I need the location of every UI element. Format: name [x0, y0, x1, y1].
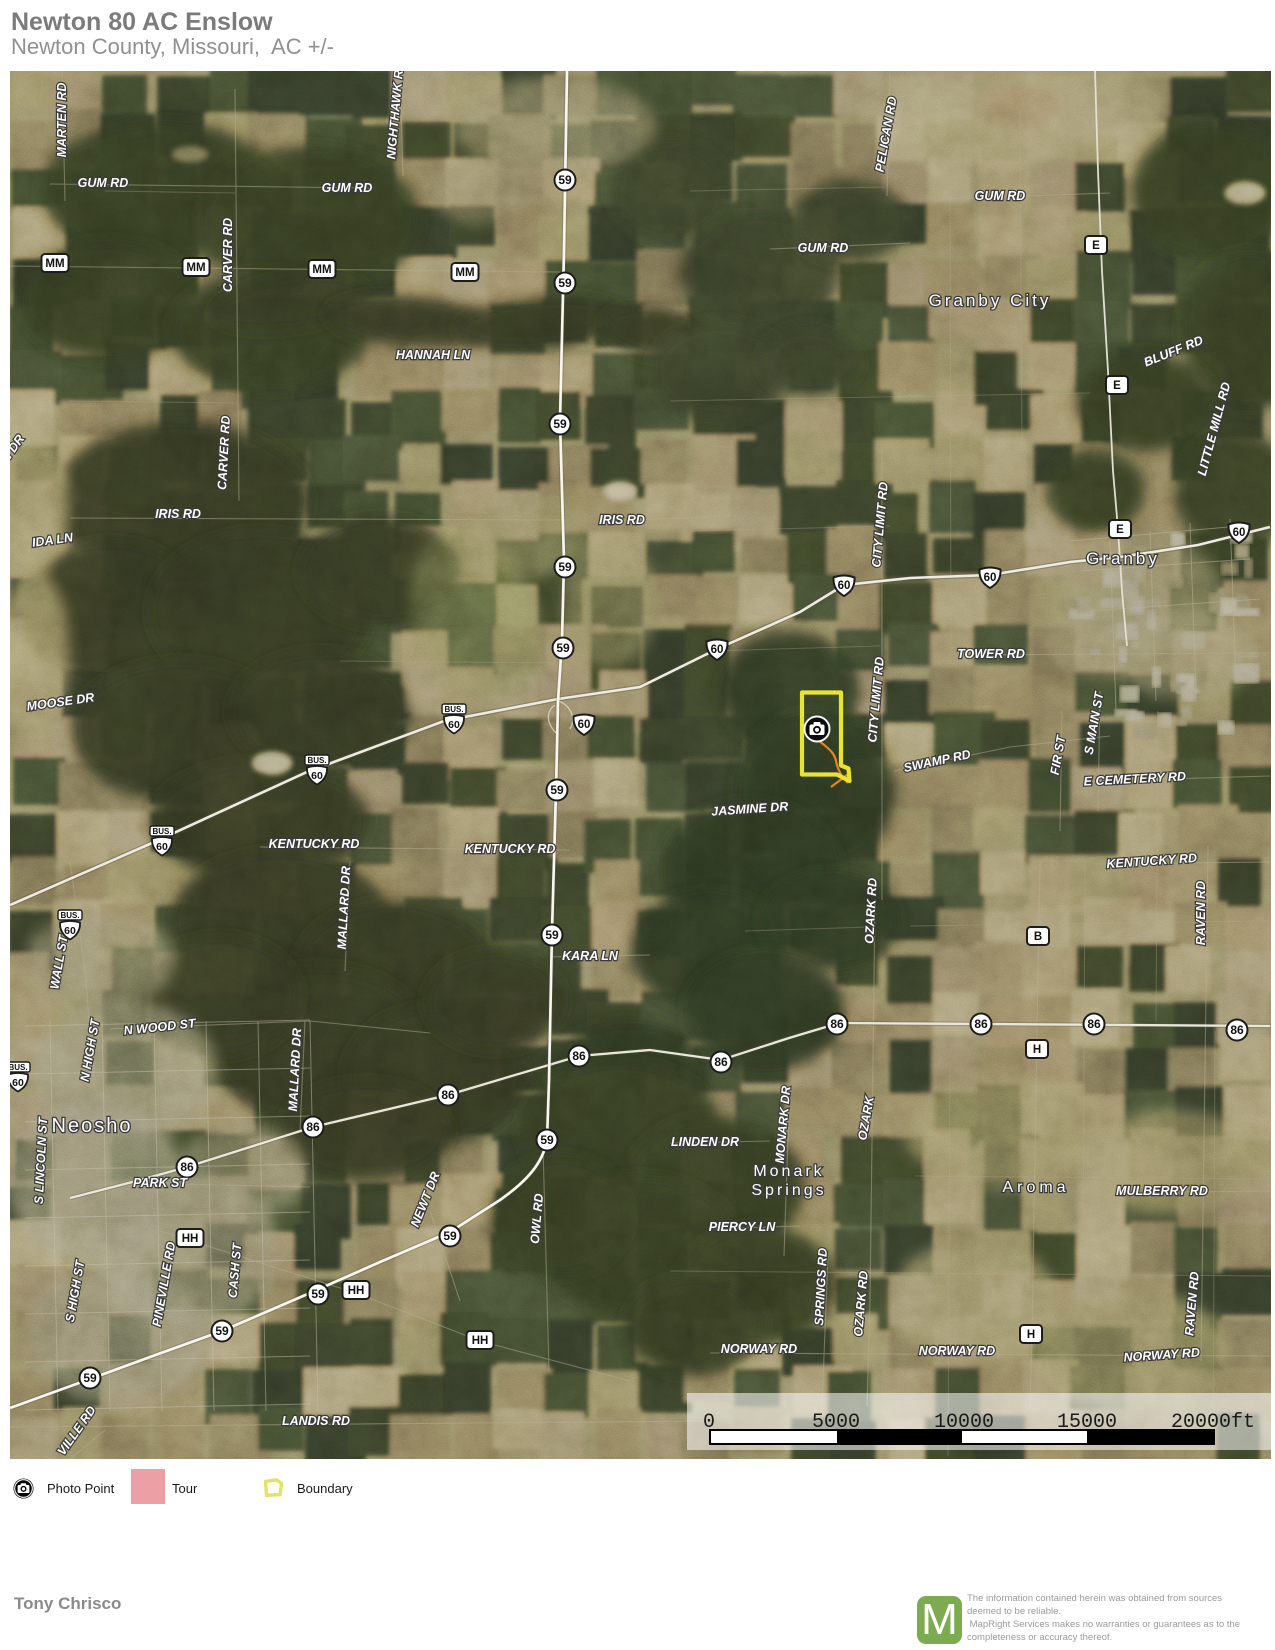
svg-text:86: 86	[974, 1017, 988, 1031]
svg-text:H: H	[1033, 1044, 1041, 1056]
svg-text:BUS.: BUS.	[444, 705, 463, 714]
svg-text:HH: HH	[348, 1285, 365, 1297]
svg-text:E: E	[1116, 524, 1124, 536]
svg-text:59: 59	[215, 1324, 229, 1338]
svg-text:LANDIS RD: LANDIS RD	[282, 1414, 350, 1428]
svg-text:GUM RD: GUM RD	[322, 181, 373, 195]
svg-text:59: 59	[83, 1371, 97, 1385]
svg-text:59: 59	[556, 641, 570, 655]
svg-text:Springs: Springs	[751, 1182, 826, 1199]
svg-text:86: 86	[180, 1160, 194, 1174]
svg-text:BUS.: BUS.	[60, 911, 79, 920]
svg-text:HH: HH	[472, 1335, 489, 1347]
svg-text:60: 60	[711, 644, 724, 656]
svg-text:59: 59	[545, 928, 559, 942]
svg-text:60: 60	[1233, 527, 1246, 539]
svg-text:Aroma: Aroma	[1002, 1179, 1069, 1196]
svg-text:60: 60	[984, 572, 997, 584]
svg-text:59: 59	[553, 417, 567, 431]
svg-text:60: 60	[578, 719, 591, 731]
svg-text:B: B	[1034, 931, 1042, 943]
svg-text:59: 59	[558, 276, 572, 290]
svg-text:86: 86	[714, 1055, 728, 1069]
svg-text:60: 60	[311, 770, 323, 782]
svg-text:MM: MM	[186, 262, 205, 274]
svg-text:Neosho: Neosho	[52, 1115, 133, 1137]
svg-text:59: 59	[540, 1133, 554, 1147]
svg-text:86: 86	[572, 1049, 586, 1063]
svg-text:86: 86	[1087, 1017, 1101, 1031]
svg-text:86: 86	[441, 1088, 455, 1102]
svg-text:60: 60	[838, 580, 851, 592]
svg-text:GUM RD: GUM RD	[798, 241, 849, 255]
svg-text:BUS.: BUS.	[152, 827, 171, 836]
svg-text:86: 86	[1230, 1023, 1244, 1037]
svg-text:59: 59	[558, 173, 572, 187]
svg-text:59: 59	[558, 560, 572, 574]
svg-text:BUS.: BUS.	[10, 1063, 28, 1072]
svg-text:KENTUCKY RD: KENTUCKY RD	[269, 837, 360, 851]
svg-text:NORWAY RD: NORWAY RD	[919, 1344, 995, 1358]
svg-text:Granby City: Granby City	[929, 291, 1052, 310]
svg-text:MM: MM	[312, 264, 331, 276]
svg-text:59: 59	[311, 1287, 325, 1301]
svg-text:PIERCY LN: PIERCY LN	[709, 1220, 776, 1234]
svg-text:MARTEN RD: MARTEN RD	[55, 83, 69, 158]
svg-text:HH: HH	[182, 1233, 199, 1245]
svg-text:NORWAY RD: NORWAY RD	[721, 1342, 797, 1356]
svg-text:RAVEN RD: RAVEN RD	[1194, 881, 1208, 945]
svg-text:59: 59	[550, 783, 564, 797]
svg-text:IRIS RD: IRIS RD	[599, 513, 645, 527]
svg-text:E: E	[1113, 380, 1121, 392]
svg-text:MM: MM	[45, 258, 64, 270]
svg-text:86: 86	[830, 1017, 844, 1031]
svg-text:GUM RD: GUM RD	[975, 189, 1026, 203]
svg-text:E: E	[1092, 240, 1100, 252]
svg-text:Granby: Granby	[1086, 549, 1160, 568]
svg-text:TOWER RD: TOWER RD	[957, 647, 1025, 661]
svg-text:86: 86	[306, 1120, 320, 1134]
svg-text:60: 60	[64, 925, 76, 937]
svg-text:HANNAH LN: HANNAH LN	[396, 348, 471, 362]
svg-text:MM: MM	[455, 267, 474, 279]
svg-text:BUS.: BUS.	[307, 756, 326, 765]
svg-text:H: H	[1027, 1329, 1035, 1341]
svg-text:60: 60	[448, 719, 460, 731]
svg-text:Monark: Monark	[753, 1163, 824, 1180]
svg-text:MULBERRY RD: MULBERRY RD	[1116, 1184, 1208, 1198]
svg-text:LINDEN DR: LINDEN DR	[671, 1135, 739, 1149]
svg-text:60: 60	[12, 1077, 24, 1089]
svg-text:CARVER RD: CARVER RD	[221, 218, 235, 292]
svg-text:PARK ST: PARK ST	[133, 1176, 188, 1190]
svg-text:60: 60	[156, 841, 168, 853]
svg-text:IRIS RD: IRIS RD	[155, 507, 201, 521]
svg-text:59: 59	[443, 1229, 457, 1243]
svg-text:GUM RD: GUM RD	[78, 176, 129, 190]
svg-text:KENTUCKY RD: KENTUCKY RD	[465, 842, 556, 856]
svg-text:KARA LN: KARA LN	[562, 949, 619, 963]
